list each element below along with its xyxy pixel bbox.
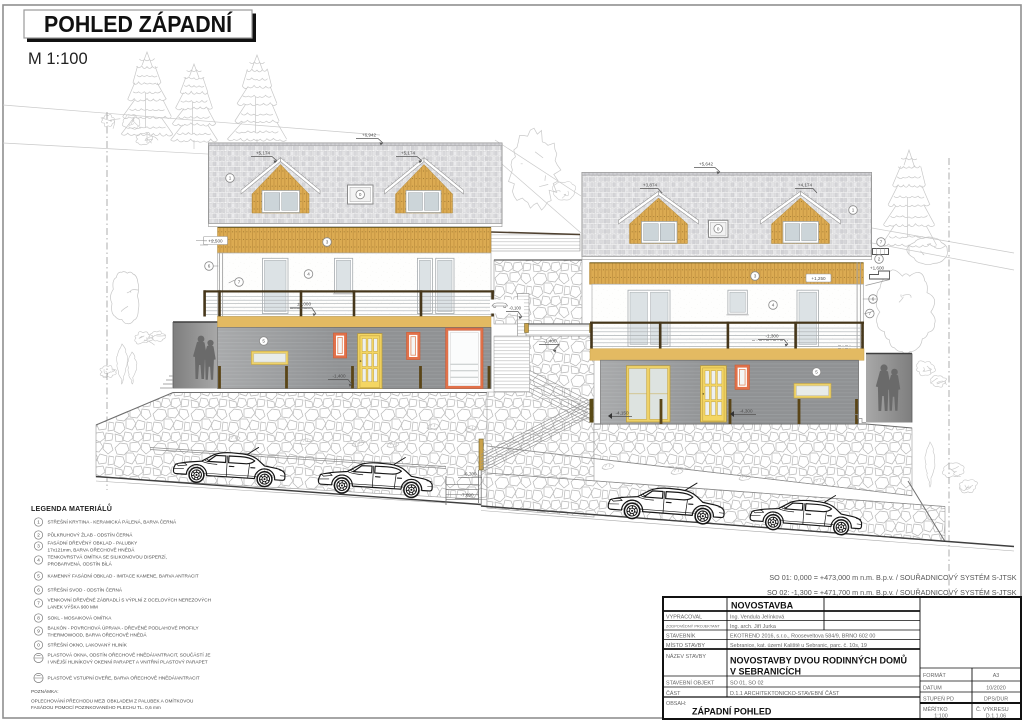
svg-text:+4,174: +4,174 bbox=[798, 183, 813, 188]
svg-text:SO 01: 0,000 = +473,000 m n.m.: SO 01: 0,000 = +473,000 m n.m. B.p.v. / … bbox=[769, 573, 1016, 582]
svg-text:1: 1 bbox=[37, 520, 40, 525]
svg-text:NÁZEV STAVBY: NÁZEV STAVBY bbox=[666, 653, 706, 660]
svg-text:-4,150: -4,150 bbox=[615, 411, 628, 416]
svg-text:D.1.1 ARCHITEKTONICKO-STAVEBNÍ: D.1.1 ARCHITEKTONICKO-STAVEBNÍ ČÁST bbox=[730, 690, 840, 697]
svg-text:1: 1 bbox=[229, 176, 232, 181]
svg-text:2: 2 bbox=[37, 533, 40, 538]
svg-text:SOKL - MOSAIKOVÁ OMÍTKA: SOKL - MOSAIKOVÁ OMÍTKA bbox=[48, 615, 113, 621]
svg-text:M 1:100: M 1:100 bbox=[28, 50, 88, 68]
svg-text:EKOTREND 2016, s.r.o., Rooseve: EKOTREND 2016, s.r.o., Rooseveltova 584/… bbox=[730, 634, 875, 640]
svg-text:-4,300: -4,300 bbox=[739, 409, 752, 414]
svg-text:STŘEŠNÍ KRYTINA - KERAMICKÁ PÁ: STŘEŠNÍ KRYTINA - KERAMICKÁ PÁLENÁ, BARV… bbox=[48, 518, 178, 525]
svg-text:0: 0 bbox=[717, 226, 720, 231]
svg-text:VENKOVNÍ DŘEVĚNÉ ZÁBRADLÍ S VÝ: VENKOVNÍ DŘEVĚNÉ ZÁBRADLÍ S VÝPLNÍ Z OCE… bbox=[48, 595, 212, 602]
svg-text:FORMÁT: FORMÁT bbox=[923, 672, 946, 679]
svg-text:PLASTOVÉ VSTUPNÍ DVEŘE, BARVA: PLASTOVÉ VSTUPNÍ DVEŘE, BARVA OŘECHOVĚ H… bbox=[48, 674, 200, 681]
svg-text:A3: A3 bbox=[993, 673, 1000, 679]
svg-text:4: 4 bbox=[772, 303, 775, 308]
svg-text:Č. VÝKRESU: Č. VÝKRESU bbox=[976, 706, 1009, 713]
svg-text:+1,250: +1,250 bbox=[811, 276, 826, 281]
svg-text:TENKOVRSTVÁ OMÍTKA SE SILIKONO: TENKOVRSTVÁ OMÍTKA SE SILIKONOVOU DISPER… bbox=[48, 553, 167, 559]
svg-text:VYPRACOVAL: VYPRACOVAL bbox=[666, 615, 702, 621]
svg-text:8: 8 bbox=[37, 616, 40, 621]
svg-text:3: 3 bbox=[754, 274, 757, 279]
svg-text:1:100: 1:100 bbox=[934, 714, 948, 720]
svg-text:5: 5 bbox=[37, 574, 40, 579]
svg-text:5: 5 bbox=[815, 370, 818, 375]
svg-text:+3,874: +3,874 bbox=[643, 183, 658, 188]
svg-text:ČÁST: ČÁST bbox=[666, 690, 681, 697]
svg-text:DPS/DUR: DPS/DUR bbox=[984, 697, 1008, 703]
svg-text:-0,100: -0,100 bbox=[509, 306, 522, 311]
svg-text:PLASTOVÁ OKNA, ODSTÍN OŘECHOVĚ: PLASTOVÁ OKNA, ODSTÍN OŘECHOVĚ HNĚDÁ/ANT… bbox=[48, 650, 211, 657]
svg-text:10/2020: 10/2020 bbox=[986, 686, 1006, 692]
svg-text:6: 6 bbox=[208, 264, 211, 269]
svg-text:NOVOSTAVBA: NOVOSTAVBA bbox=[731, 601, 794, 611]
svg-text:+6,942: +6,942 bbox=[362, 133, 377, 138]
svg-text:NOVOSTAVBY DVOU RODINNÝCH DOMŮ: NOVOSTAVBY DVOU RODINNÝCH DOMŮ bbox=[730, 655, 907, 666]
svg-text:1: 1 bbox=[852, 208, 855, 213]
svg-text:STAVEBNÍ OBJEKT: STAVEBNÍ OBJEKT bbox=[666, 680, 715, 687]
svg-text:4: 4 bbox=[307, 272, 310, 277]
svg-text:3: 3 bbox=[37, 544, 40, 549]
svg-text:PŮLKRUHOVÝ ŽLAB - ODSTÍN ČERNÁ: PŮLKRUHOVÝ ŽLAB - ODSTÍN ČERNÁ bbox=[48, 531, 134, 538]
svg-text:THERMOWOOD, BARVA OŘECHOVĚ HNĚ: THERMOWOOD, BARVA OŘECHOVĚ HNĚDÁ bbox=[48, 630, 148, 637]
svg-text:D.1.1.06: D.1.1.06 bbox=[986, 714, 1006, 720]
svg-text:STŘEŠNÍ SVOD - ODSTÍN ČERNÁ: STŘEŠNÍ SVOD - ODSTÍN ČERNÁ bbox=[48, 586, 123, 593]
svg-text:7: 7 bbox=[238, 280, 241, 285]
svg-text:17x121mm, BARVA OŘECHOVĚ HNĚDÁ: 17x121mm, BARVA OŘECHOVĚ HNĚDÁ bbox=[48, 545, 136, 552]
svg-text:Sebranice, kat. území Kaliště: Sebranice, kat. území Kaliště u Sebranic… bbox=[730, 643, 867, 649]
svg-text:STAVEBNÍK: STAVEBNÍK bbox=[666, 633, 696, 640]
svg-text:V SEBRANICÍCH: V SEBRANICÍCH bbox=[730, 667, 801, 677]
svg-text:STŘEŠNÍ OKNO, LAKOVANÝ HLINÍK: STŘEŠNÍ OKNO, LAKOVANÝ HLINÍK bbox=[48, 641, 128, 648]
svg-text:SO 02: -1,300 = +471,700 m n.m: SO 02: -1,300 = +471,700 m n.m. B.p.v. /… bbox=[767, 588, 1017, 597]
svg-text:Ing. arch. Jiří Jurka: Ing. arch. Jiří Jurka bbox=[730, 624, 776, 630]
svg-text:DATUM: DATUM bbox=[923, 686, 942, 692]
svg-text:6: 6 bbox=[37, 588, 40, 593]
svg-text:ZÁPADNÍ POHLED: ZÁPADNÍ POHLED bbox=[692, 707, 772, 717]
svg-text:-6,700: -6,700 bbox=[463, 472, 476, 477]
svg-text:+5,174: +5,174 bbox=[256, 151, 271, 156]
svg-text:MÍSTO STAVBY: MÍSTO STAVBY bbox=[666, 642, 705, 649]
svg-text:PROBARVENÁ, ODSTÍN BÍLÁ: PROBARVENÁ, ODSTÍN BÍLÁ bbox=[48, 560, 113, 566]
svg-text:9: 9 bbox=[37, 629, 40, 634]
svg-text:SO 01, SO 02: SO 01, SO 02 bbox=[730, 681, 764, 687]
svg-text:-7,690: -7,690 bbox=[460, 493, 473, 498]
svg-text:POZNÁMKA:: POZNÁMKA: bbox=[31, 688, 59, 694]
svg-text:STUPEŇ PD: STUPEŇ PD bbox=[923, 696, 954, 703]
svg-text:5: 5 bbox=[262, 339, 265, 344]
svg-text:LANEK VÝŠKA 900 MM: LANEK VÝŠKA 900 MM bbox=[48, 603, 98, 609]
svg-text:POHLED ZÁPADNÍ: POHLED ZÁPADNÍ bbox=[44, 10, 233, 37]
svg-text:-1,300: -1,300 bbox=[765, 334, 778, 339]
svg-text:Ing. Vendula Jelínková: Ing. Vendula Jelínková bbox=[730, 615, 784, 621]
svg-text:ZODPOVĚDNÝ PROJEKTANT: ZODPOVĚDNÝ PROJEKTANT bbox=[666, 624, 720, 629]
svg-text:+5,642: +5,642 bbox=[699, 162, 714, 167]
svg-text:OBSAH:: OBSAH: bbox=[666, 701, 686, 707]
svg-text:-1,400: -1,400 bbox=[543, 339, 556, 344]
svg-text:FASÁDOU POMOCÍ POZINKOVANÉHO P: FASÁDOU POMOCÍ POZINKOVANÉHO PLECHU TL. … bbox=[31, 704, 161, 710]
svg-text:±0,000: ±0,000 bbox=[297, 302, 311, 307]
svg-text:2: 2 bbox=[878, 257, 881, 262]
svg-text:4: 4 bbox=[37, 558, 40, 563]
svg-text:LEGENDA MATERIÁLŮ: LEGENDA MATERIÁLŮ bbox=[31, 503, 112, 513]
svg-text:+5,174: +5,174 bbox=[401, 151, 416, 156]
svg-text:+1,600: +1,600 bbox=[870, 266, 885, 271]
svg-text:OPLECHOVÁNÍ PŘECHODU MEZI OBKL: OPLECHOVÁNÍ PŘECHODU MEZI OBKLADEM Z PAL… bbox=[31, 697, 194, 704]
svg-text:3: 3 bbox=[326, 240, 329, 245]
svg-text:7: 7 bbox=[880, 240, 883, 245]
svg-text:KAMENNÝ FASÁDNÍ OBKLAD - IMITA: KAMENNÝ FASÁDNÍ OBKLAD - IMITACE KAMENE,… bbox=[48, 573, 199, 579]
svg-text:I VNĚJŠÍ HLINÍKOVÝ OKENNÍ PARA: I VNĚJŠÍ HLINÍKOVÝ OKENNÍ PARAPET A VNIT… bbox=[48, 657, 208, 664]
svg-text:MĚŘÍTKO: MĚŘÍTKO bbox=[923, 705, 948, 713]
svg-text:FASÁDNÍ DŘEVĚNÝ OBKLAD - PALUB: FASÁDNÍ DŘEVĚNÝ OBKLAD - PALUBKY bbox=[48, 538, 139, 545]
svg-text:7: 7 bbox=[37, 601, 40, 606]
svg-text:BALKÓN - POVRCHOVÁ ÚPRAVA - DŘ: BALKÓN - POVRCHOVÁ ÚPRAVA - DŘEVĚNÉ PODL… bbox=[48, 623, 200, 630]
svg-text:-1,400: -1,400 bbox=[332, 374, 345, 379]
svg-text:0: 0 bbox=[37, 643, 40, 648]
svg-text:0: 0 bbox=[359, 192, 362, 197]
